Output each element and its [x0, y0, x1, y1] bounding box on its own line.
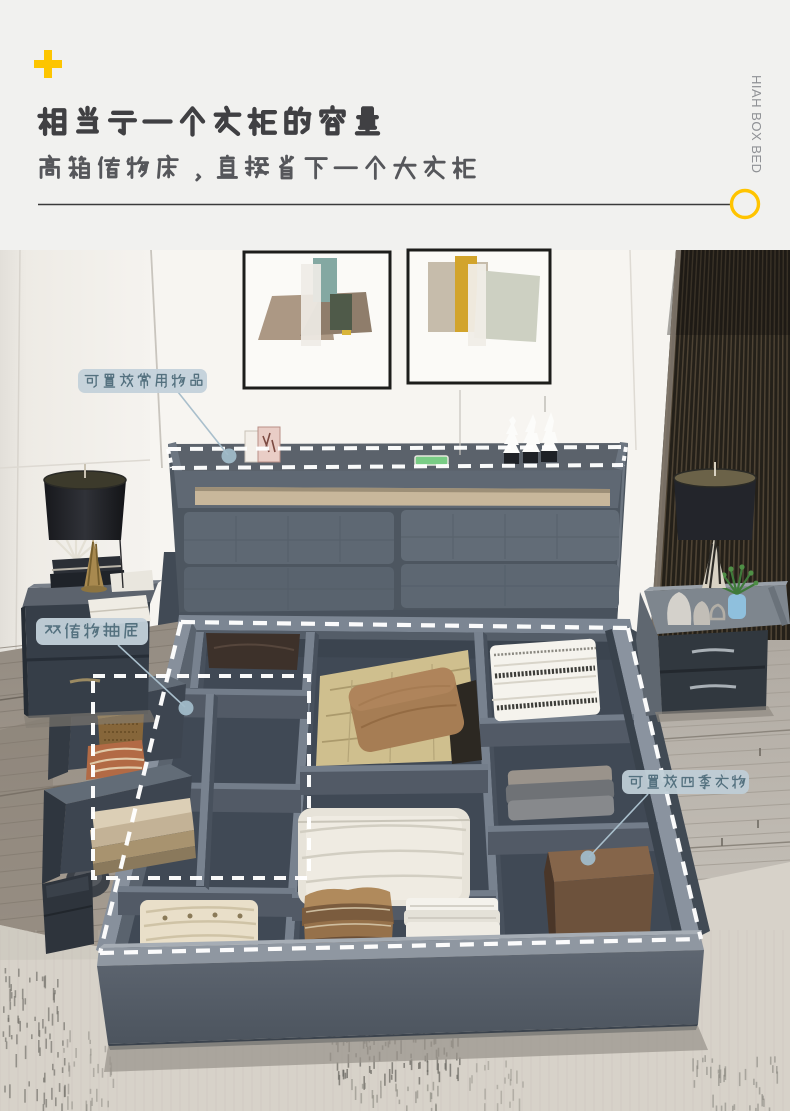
svg-text:HIAH BOX BED: HIAH BOX BED: [749, 75, 764, 173]
